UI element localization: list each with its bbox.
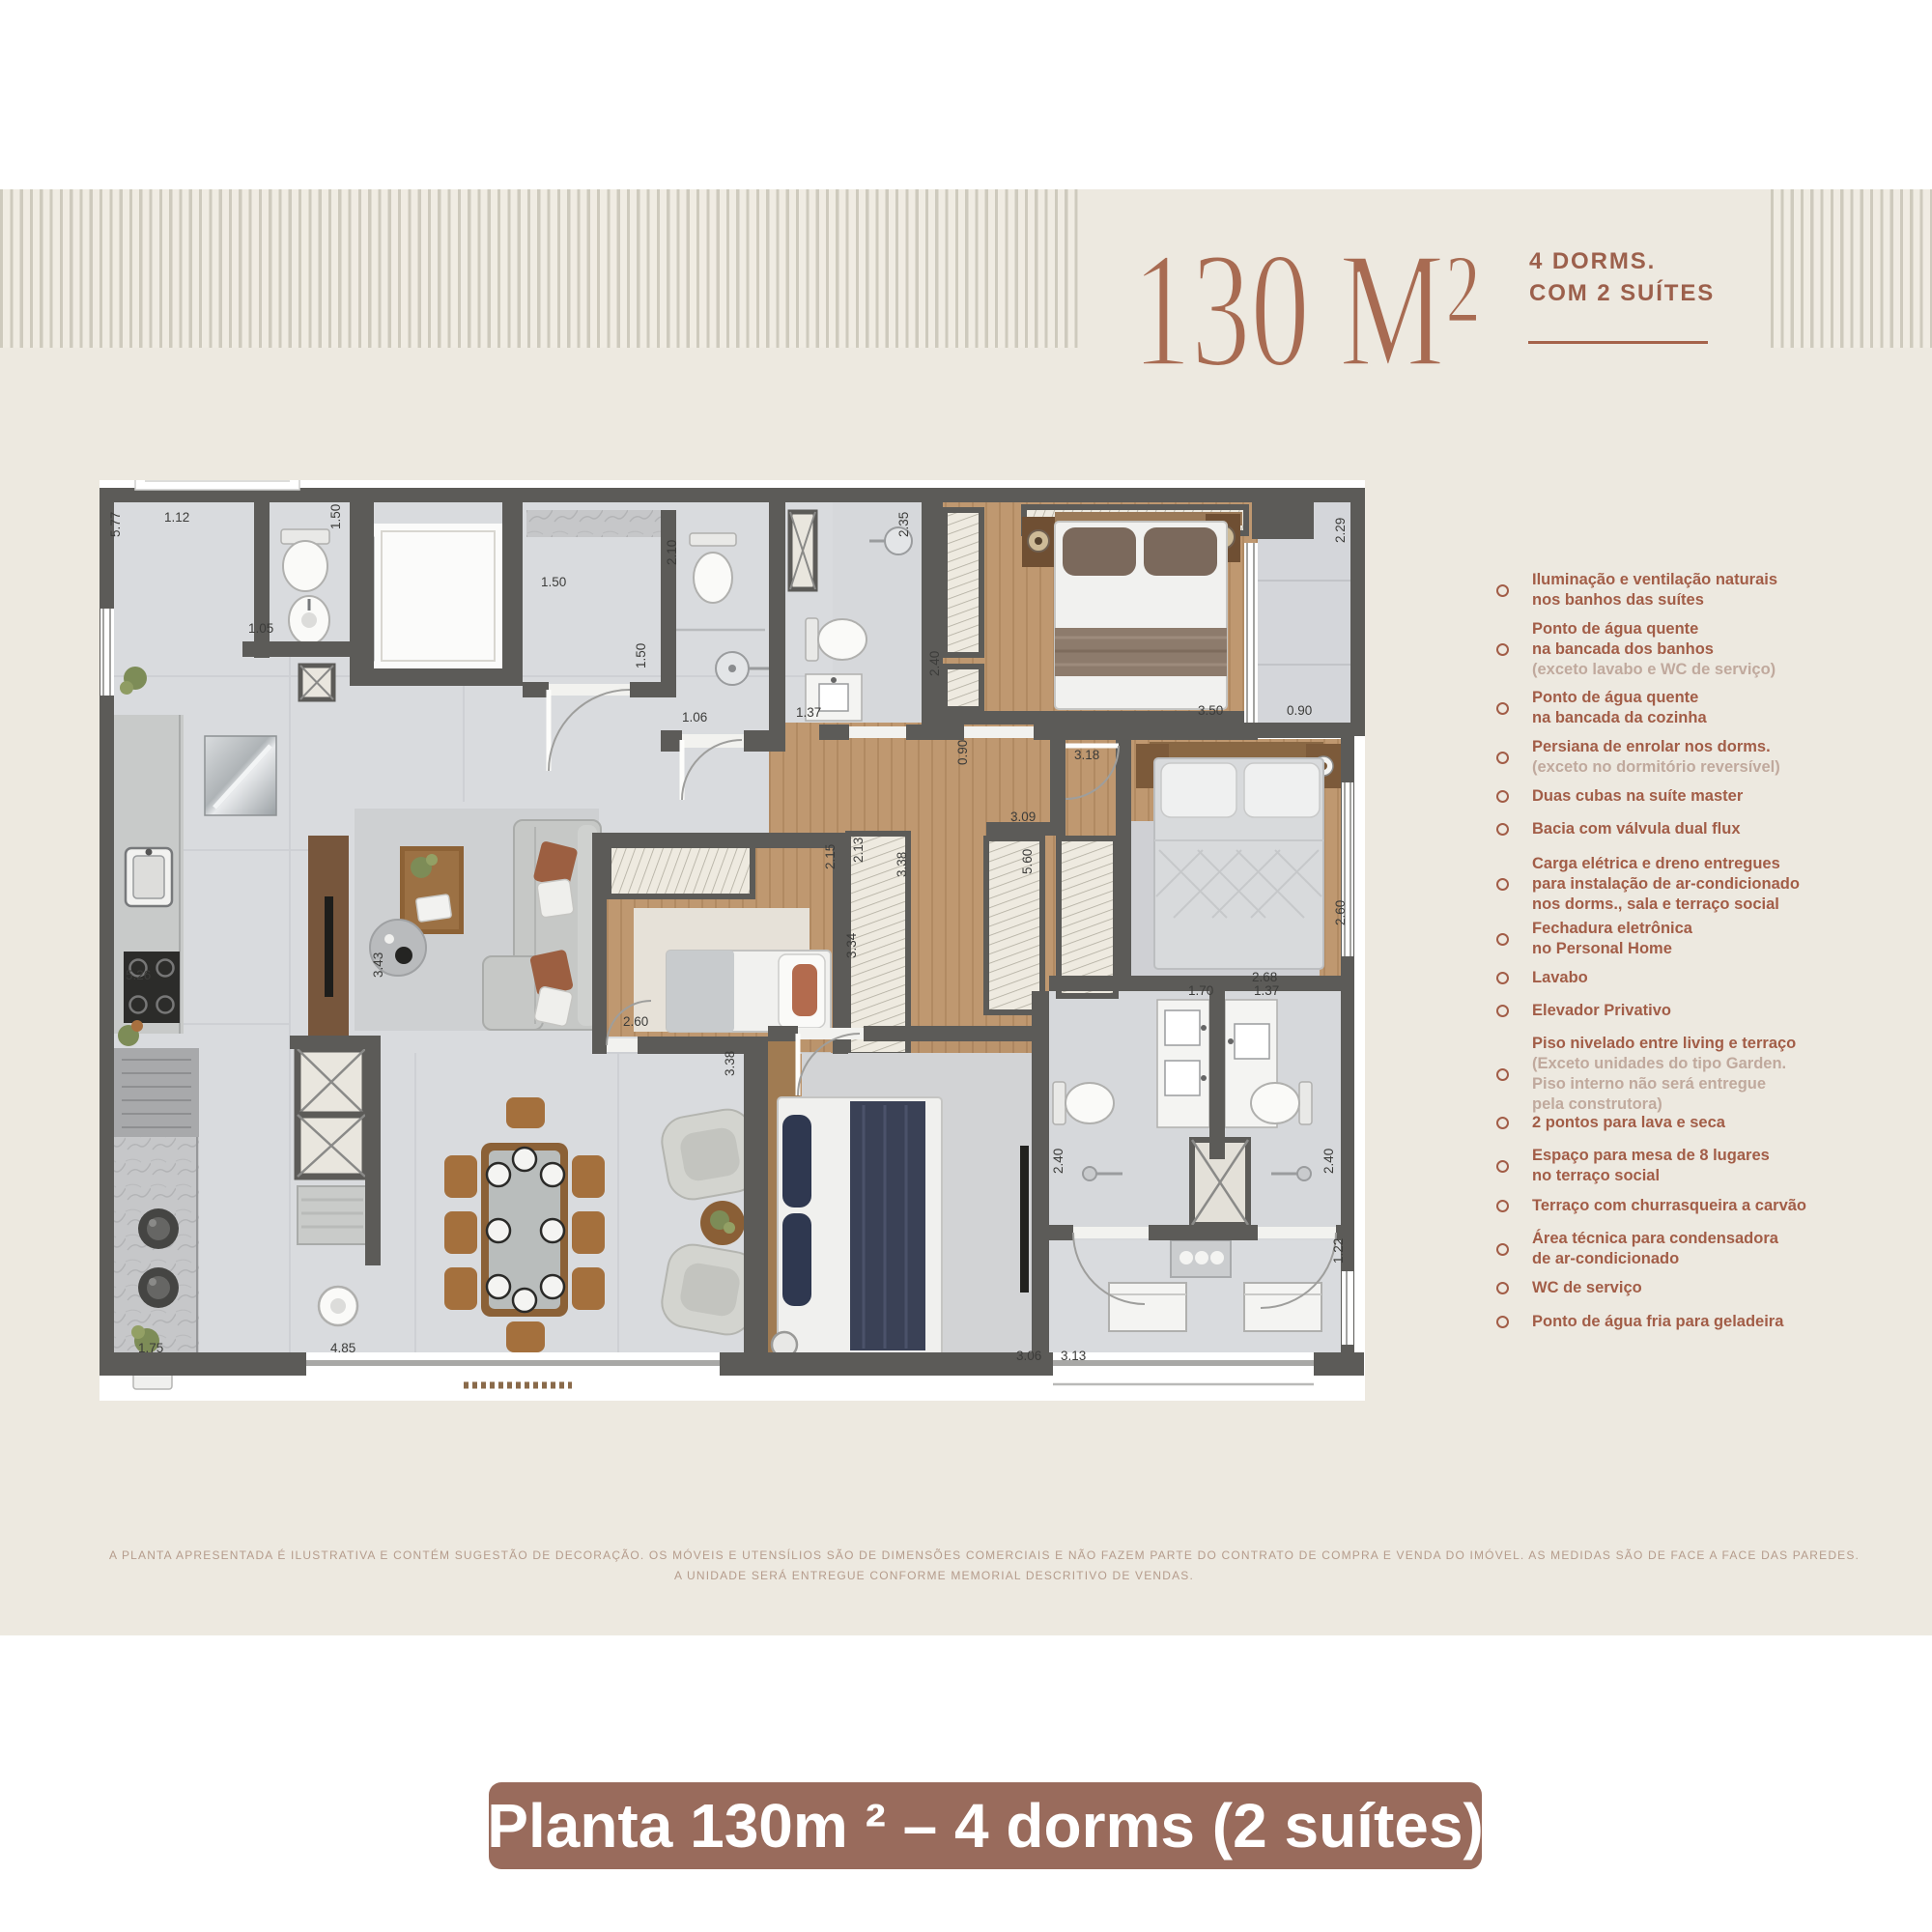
svg-text:4.85: 4.85 [330,1341,355,1355]
svg-text:2.35: 2.35 [896,512,911,537]
svg-text:2.68: 2.68 [1252,970,1277,984]
svg-text:0.90: 0.90 [955,740,970,765]
svg-text:2.29: 2.29 [1333,518,1348,543]
svg-text:3.50: 3.50 [1198,703,1223,718]
svg-text:2.15: 2.15 [823,844,838,869]
svg-text:2.13: 2.13 [851,838,866,863]
svg-text:3.18: 3.18 [1074,748,1099,762]
svg-text:2.40: 2.40 [927,651,942,676]
svg-text:0.90: 0.90 [1287,703,1312,718]
svg-text:3.09: 3.09 [1010,810,1036,824]
svg-text:1.22: 1.22 [1331,1238,1346,1264]
svg-text:2.10: 2.10 [665,540,679,565]
svg-text:1.50: 1.50 [328,504,343,529]
svg-text:1.37: 1.37 [796,705,821,720]
svg-text:1.12: 1.12 [164,510,189,525]
svg-text:1.05: 1.05 [248,621,273,636]
svg-text:5.26: 5.26 [126,968,151,982]
svg-text:5.60: 5.60 [1020,849,1035,874]
svg-text:1.70: 1.70 [1188,983,1213,998]
svg-text:3.38: 3.38 [895,852,909,877]
svg-text:3.06: 3.06 [1016,1349,1041,1363]
svg-text:2.60: 2.60 [623,1014,648,1029]
svg-text:1.50: 1.50 [541,575,566,589]
svg-text:2.60: 2.60 [1333,900,1348,925]
svg-text:1.75: 1.75 [138,1341,163,1355]
svg-text:2.40: 2.40 [1321,1149,1336,1174]
svg-text:3.38: 3.38 [723,1051,737,1076]
svg-text:2.40: 2.40 [1051,1149,1065,1174]
svg-text:3.13: 3.13 [1061,1349,1086,1363]
svg-text:3.43: 3.43 [371,952,385,978]
svg-text:1.37: 1.37 [1254,983,1279,998]
svg-text:3.34: 3.34 [844,932,859,958]
svg-text:1.50: 1.50 [634,643,648,668]
svg-text:5.77: 5.77 [108,512,123,537]
svg-text:130 M²: 130 M² [1132,218,1480,401]
svg-text:1.06: 1.06 [682,710,707,724]
